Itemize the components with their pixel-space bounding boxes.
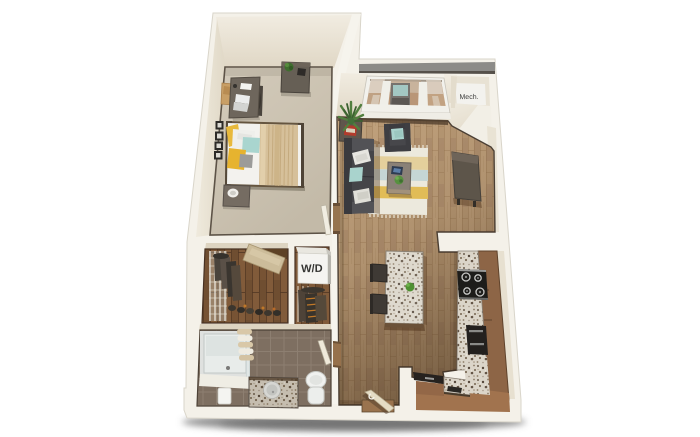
svg-text:W/D: W/D [301,263,323,275]
svg-text:Mech.: Mech. [459,94,478,101]
